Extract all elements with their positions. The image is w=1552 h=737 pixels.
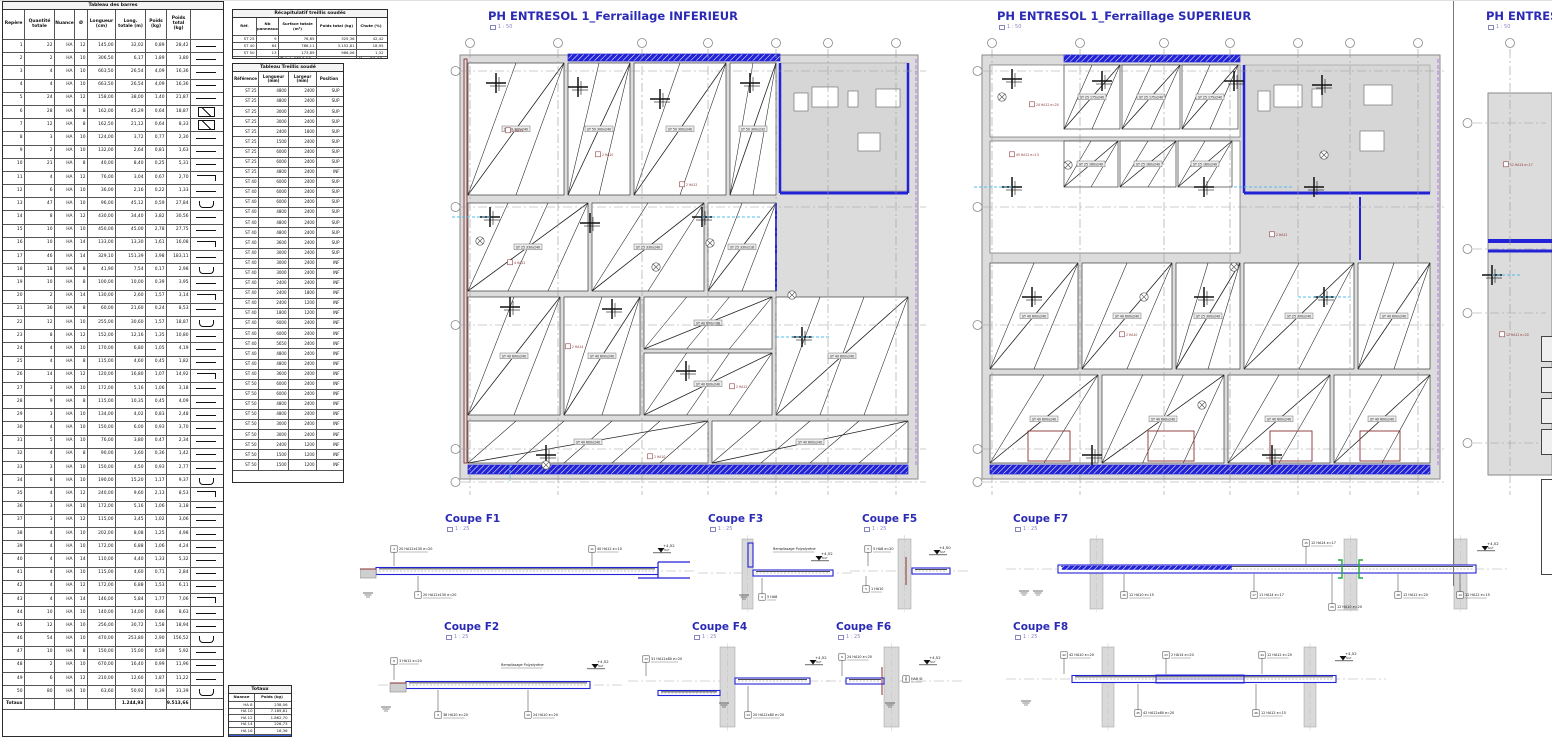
table-cell: 1,07 [146, 370, 167, 382]
table-cell: 156,52 [167, 633, 191, 645]
coupe-canvas: 35 HA8 e=2051 HA10+4,50NGF [850, 533, 968, 615]
table-cell: 1200 [289, 309, 317, 318]
table-cell: 4,19 [167, 343, 191, 355]
table-cell: 4800 [259, 360, 289, 369]
table-cell: Référence [233, 72, 259, 86]
table-cell: 4800 [259, 218, 289, 227]
level-marker: +4,52NGF [811, 551, 833, 561]
table-cell: 3 [25, 502, 55, 514]
table-cell: ST 40 [233, 329, 259, 338]
table-cell: 5,92 [167, 647, 191, 659]
table-cell: HA [55, 449, 75, 461]
svg-text:Remplissage Polystyrène: Remplissage Polystyrène [773, 547, 816, 551]
coupe-canvas: 83 HA12 e=20938 HA10 e=201024 HA10 e=20R… [378, 641, 623, 733]
table-cell: 10 [75, 462, 88, 474]
table-cell: 7 [3, 119, 25, 131]
table-cell: ST 50 [233, 390, 259, 399]
table-cell: 12 [75, 515, 88, 527]
table-row: ST 5013173,89986,061,32 [233, 50, 387, 57]
table-cell: HA [55, 383, 75, 395]
table-cell: 2400 [289, 269, 317, 278]
coupe-title: Coupe F5 [862, 513, 917, 525]
table-cell: 20 [3, 291, 25, 303]
table-cell: 45,12 [116, 198, 146, 210]
table-cell: SUP [317, 127, 341, 136]
bar-shape-glyph [196, 573, 216, 574]
svg-text:10: 10 [526, 713, 530, 717]
table-cell: ST 40 [233, 339, 259, 348]
table-cell: 12 [75, 330, 88, 342]
svg-text:12 HA12 e=20: 12 HA12 e=20 [1403, 593, 1428, 597]
svg-text:19: 19 [1458, 593, 1462, 597]
table-row: 434HA14146,005,841,777,06 [3, 594, 223, 607]
svg-text:1 HA10: 1 HA10 [871, 587, 883, 591]
svg-text:ST 40 600x240: ST 40 600x240 [590, 355, 614, 359]
table-cell: 210,00 [88, 673, 116, 685]
table-row: 384HA10202,008,081,254,98 [3, 528, 223, 541]
plan-scale: 1 : 50 [1488, 24, 1510, 30]
table-cell: 12 [75, 172, 88, 184]
table-cell: 8 [25, 475, 55, 487]
table-cell: HA [55, 488, 75, 500]
table-cell: 1.244,93 [116, 699, 146, 709]
table-cell: 15,00 [116, 647, 146, 659]
table-cell: 0,99 [146, 660, 167, 672]
title-block-cell [1541, 336, 1552, 362]
bar-shape-glyph [196, 665, 216, 666]
svg-text:12 HA14 e=17: 12 HA14 e=17 [1510, 163, 1533, 167]
table-cell: 8 [75, 357, 88, 369]
table-cell: HA [55, 607, 75, 619]
table-row: ST 4030002400SUP [233, 249, 343, 259]
table-cell: 6000 [259, 158, 289, 167]
svg-text:7: 7 [417, 593, 419, 597]
table-cell: 10 [75, 198, 88, 210]
svg-text:2 HA12: 2 HA12 [736, 385, 747, 389]
table-cell: 30,72 [116, 620, 146, 632]
table-cell: 16,36 [255, 728, 289, 734]
table-cell: 4 [25, 357, 55, 369]
scale-value: 1 : 25 [846, 634, 860, 640]
table-cell: 6000 [259, 329, 289, 338]
table-cell: ST 25 [233, 127, 259, 136]
table-cell: 3600 [259, 238, 289, 247]
table-cell: ST 25 [233, 97, 259, 106]
svg-text:20 HA12x130 e=20: 20 HA12x130 e=20 [423, 593, 456, 597]
room-area [780, 63, 908, 191]
table-cell: 10 [75, 541, 88, 553]
table-cell: 8,53 [167, 488, 191, 500]
table-cell: 60,00 [88, 304, 116, 316]
mesh-list-table: Tableau Treillis soudéRéférenceLongueur … [232, 63, 344, 483]
table-cell: 470,00 [88, 633, 116, 645]
table-cell: 7,54 [116, 264, 146, 276]
table-cell: 18,95 [357, 43, 385, 49]
table-cell: 6000 [259, 148, 289, 157]
svg-text:12 HA12 e=15: 12 HA12 e=15 [1465, 593, 1490, 597]
bar-shape-glyph [199, 478, 214, 485]
table-cell [146, 699, 167, 709]
table-cell: 1,77 [146, 594, 167, 606]
table-cell: SUP [317, 238, 341, 247]
svg-text:20: 20 [1330, 605, 1334, 609]
table-row: ST 4060002400SUP [233, 178, 343, 188]
bar-shape-glyph [198, 120, 215, 130]
table-cell: HA 10 [229, 709, 255, 715]
table-row: 4654HA10470,00253,802,90156,52 [3, 633, 223, 646]
table-row: 1021HA840,008,400,255,31 [3, 159, 223, 172]
table-cell: 183,11 [167, 251, 191, 263]
table-cell: 3000 [259, 259, 289, 268]
table-cell [191, 581, 221, 593]
table-cell: 5,31 [167, 159, 191, 171]
table-cell: Total: 4.627,1 kg [317, 57, 357, 59]
table-cell: HA [55, 66, 75, 78]
table-cell: 5,16 [116, 502, 146, 514]
table-row: ST 2548002400INF [233, 168, 343, 178]
table-cell: INF [317, 279, 341, 288]
svg-text:ST 25 175x240: ST 25 175x240 [1080, 96, 1104, 100]
table-row: HA 14226,73 [229, 722, 291, 729]
level-marker: +4,50NGF [929, 545, 951, 555]
bar-shape-glyph [196, 98, 216, 99]
table-cell: 173,89 [279, 50, 317, 56]
table-row: ST 2560002400SUP [233, 148, 343, 158]
svg-text:ST 40 600x240: ST 40 600x240 [576, 441, 600, 445]
table-cell: 34,40 [116, 211, 146, 223]
svg-text:5 HA8 e=20: 5 HA8 e=20 [873, 547, 894, 551]
table-cell: 0,39 [146, 686, 167, 698]
table-cell: 3000 [259, 420, 289, 429]
table-cell: 0,81 [146, 146, 167, 158]
table-row: ST 25976,85325,3642,42 [233, 36, 387, 43]
table-cell [191, 370, 221, 382]
table-cell: ST 40 [233, 178, 259, 187]
table-cell: 4800 [259, 87, 289, 96]
table-cell: 3 [3, 66, 25, 78]
table-cell: 10 [25, 647, 55, 659]
bar-shape-glyph [199, 201, 214, 208]
bar-shape-glyph [196, 652, 216, 653]
table-cell: 10 [75, 422, 88, 434]
table-cell: 2400 [289, 87, 317, 96]
table-cell: ST 50 [233, 450, 259, 459]
table-cell: 8 [25, 211, 55, 223]
svg-text:13: 13 [644, 657, 648, 661]
table-cell: HA [55, 106, 75, 118]
table-cell: 6,88 [116, 581, 146, 593]
table-row: HA 1616,36 [229, 728, 291, 735]
svg-text:24 HA10 e=20: 24 HA10 e=20 [533, 713, 558, 717]
bar-shape-glyph [196, 534, 216, 535]
table-cell: 12 [75, 581, 88, 593]
table-cell [191, 436, 221, 448]
table-row: ST 4060002400SUP [233, 188, 343, 198]
table-header-row: RepèreQuantité totaleNuanceØLongueur (cm… [3, 10, 223, 40]
table-row: ST 4036002400SUP [233, 238, 343, 248]
table-cell: 16 [3, 238, 25, 250]
table-cell: Total 87 [257, 57, 279, 59]
title-block-cell [1541, 367, 1552, 393]
bar-shape-glyph [196, 454, 216, 455]
slab-section [1072, 675, 1336, 683]
table-cell: 2400 [289, 218, 317, 227]
table-cell [191, 647, 221, 659]
table-cell: HA [55, 225, 75, 237]
level-marker: +4,52NGF [587, 659, 609, 669]
table-cell: 5,84 [116, 594, 146, 606]
table-row: 1910HA8100,0010,000,393,95 [3, 277, 223, 290]
table-cell: 28 [3, 396, 25, 408]
table-cell: 2400 [289, 390, 317, 399]
table-cell: Poids (kg) [146, 10, 167, 39]
table-cell: 238,06 [255, 702, 289, 708]
table-cell: 2400 [289, 158, 317, 167]
svg-text:12 HA12 e=20: 12 HA12 e=20 [1267, 653, 1292, 657]
table-cell: 10 [75, 633, 88, 645]
table-cell: ST 40 [233, 319, 259, 328]
table-cell: 2400 [289, 370, 317, 379]
table-cell: HA [55, 436, 75, 448]
table-cell: 0,93 [146, 422, 167, 434]
scale-icon [1015, 527, 1021, 532]
table-cell: 45,00 [116, 225, 146, 237]
table-cell: 10 [75, 53, 88, 65]
table-row: 254HA8115,004,600,451,82 [3, 357, 223, 370]
table-cell: 45 [3, 620, 25, 632]
table-cell: SUP [317, 208, 341, 217]
coupe-scale: 1 : 25 [694, 634, 716, 640]
table-cell: 18,94 [167, 620, 191, 632]
table-cell: HA [55, 211, 75, 223]
table-cell: 8,63 [167, 607, 191, 619]
title-block-cell [1541, 479, 1552, 575]
table-cell [191, 251, 221, 263]
table-cell: 4 [25, 172, 55, 184]
svg-text:ST 40 600x240: ST 40 600x240 [798, 441, 822, 445]
coupe-scale: 1 : 25 [864, 526, 886, 532]
table-cell: 10,80 [167, 330, 191, 342]
table-cell: 1500 [259, 137, 289, 146]
table-cell: 2400 [289, 410, 317, 419]
table-cell: 12 [75, 673, 88, 685]
table-row: 293HA10134,004,020,832,48 [3, 409, 223, 422]
table-cell [191, 132, 221, 144]
table-row: 404HA14110,004,401,335,32 [3, 554, 223, 567]
table-cell: 11 [3, 172, 25, 184]
table-cell: ST 25 [233, 117, 259, 126]
svg-text:45 HA12 e=13: 45 HA12 e=13 [1016, 153, 1039, 157]
table-cell: 2400 [289, 319, 317, 328]
table-cell: 10 [75, 185, 88, 197]
table-row: ST 2548002400SUP [233, 97, 343, 107]
table-cell: 2,98 [167, 264, 191, 276]
scale-value: 1 : 25 [454, 634, 468, 640]
table-cell: 986,06 [317, 50, 357, 56]
table-cell: 0,93 [146, 462, 167, 474]
table-cell [191, 541, 221, 553]
svg-text:ST 40 600x240: ST 40 600x240 [1151, 418, 1175, 422]
table-cell: 32 [3, 449, 25, 461]
table-row: HA 121.862,70 [229, 715, 291, 722]
scale-value: 1 : 50 [498, 24, 512, 30]
table-cell: 9,37 [167, 475, 191, 487]
table-row: ST 5060002400INF [233, 390, 343, 400]
level-marker: +4,52NGF [805, 655, 827, 665]
table-cell: 6000 [259, 380, 289, 389]
table-cell: 14 [75, 554, 88, 566]
table-cell: 18,87 [167, 106, 191, 118]
table-cell: 1,87 [146, 673, 167, 685]
table-cell: HA [55, 647, 75, 659]
svg-text:ST 40 600x240: ST 40 600x240 [830, 355, 854, 359]
table-cell: 1800 [259, 309, 289, 318]
table-cell: 14,00 [116, 607, 146, 619]
table-cell: 63,60 [88, 686, 116, 698]
table-cell: HA [55, 554, 75, 566]
table-cell: 50 [3, 686, 25, 698]
table-cell: 1,63 [167, 146, 191, 158]
bar-shape-glyph [196, 217, 216, 218]
coupe-title: Coupe F3 [708, 513, 763, 525]
table-cell: ST 40 [233, 370, 259, 379]
table-cell: 96,00 [88, 198, 116, 210]
table-title: Récapitulatif treillis soudés [233, 10, 387, 18]
table-cell: 1200 [289, 299, 317, 308]
table-cell: 32,02 [116, 40, 146, 52]
bar-shape-glyph [196, 441, 216, 442]
table-cell: 2,70 [167, 172, 191, 184]
table-cell: 2400 [289, 198, 317, 207]
table-cell: SUP [317, 137, 341, 146]
table-cell: 1,40 [146, 93, 167, 105]
table-cell: 13,30 [116, 238, 146, 250]
table-title: Tableau des barres [3, 2, 223, 10]
table-cell: SUP [317, 228, 341, 237]
plan-scale: 1 : 50 [999, 24, 1021, 30]
table-cell: HA [55, 119, 75, 131]
table-cell: 4800 [259, 349, 289, 358]
svg-text:46: 46 [1254, 711, 1258, 715]
table-cell: 150,00 [88, 462, 116, 474]
svg-text:ST 40 600x240: ST 40 600x240 [1382, 315, 1406, 319]
table-cell: 3,80 [167, 53, 191, 65]
table-cell: 12 [75, 93, 88, 105]
table-cell: HA [55, 172, 75, 184]
table-row: 148HA12430,0034,403,8230,56 [3, 211, 223, 224]
table-cell: 21,87 [167, 93, 191, 105]
table-cell: HA [55, 660, 75, 672]
table-cell: 21,12 [116, 119, 146, 131]
table-cell: 3,80 [116, 436, 146, 448]
table-cell: 306,50 [88, 53, 116, 65]
table-row: 92HA10132,002,640,811,63 [3, 146, 223, 159]
table-cell: 2400 [289, 148, 317, 157]
scale-value: 1 : 25 [702, 634, 716, 640]
table-cell: Repère [3, 10, 25, 39]
table-cell: SUP [317, 188, 341, 197]
table-row: ST 4024001200INF [233, 299, 343, 309]
table-cell: 8 [75, 106, 88, 118]
table-cell: 1,42 [167, 449, 191, 461]
table-cell: 11,96 [167, 660, 191, 672]
table-cell: 0,83 [146, 409, 167, 421]
table-cell: 2400 [259, 279, 289, 288]
svg-text:+4,52: +4,52 [929, 655, 941, 660]
coupe-canvas: 624 HA10 e=202HA8 St+4,52NGF [826, 641, 964, 733]
table-row: HA 107.169,81 [229, 709, 291, 716]
table-cell: 2 [3, 53, 25, 65]
svg-text:ST 50 300x232: ST 50 300x232 [741, 128, 765, 132]
coupe-scale: 1 : 25 [710, 526, 732, 532]
table-cell: ST 40 [233, 218, 259, 227]
svg-text:31 HA12x80 e=20: 31 HA12x80 e=20 [651, 657, 682, 661]
table-cell: SUP [317, 158, 341, 167]
table-cell: ST 40 [233, 299, 259, 308]
table-cell: 10 [75, 80, 88, 92]
table-cell: INF [317, 450, 341, 459]
table-cell: 44 [3, 607, 25, 619]
table-cell: 2,16 [116, 185, 146, 197]
table-cell: 27,84 [167, 198, 191, 210]
svg-text:ST 50 300x240: ST 50 300x240 [668, 128, 692, 132]
table-cell: HA [55, 330, 75, 342]
svg-text:11: 11 [590, 547, 594, 551]
bar-shape-glyph [196, 138, 216, 139]
table-cell: 14 [75, 251, 88, 263]
table-cell: 4 [25, 488, 55, 500]
table-row: ST 2515002400SUP [233, 137, 343, 147]
table-cell: 40 [3, 554, 25, 566]
table-cell [191, 264, 221, 276]
table-cell: 1,82 [167, 357, 191, 369]
table-cell: 1,05 [146, 343, 167, 355]
table-cell [191, 106, 221, 118]
svg-text:NGF: NGF [816, 660, 822, 664]
table-cell: 0,39 [146, 277, 167, 289]
table-cell: Réf. [233, 18, 257, 35]
table-cell: 38 [3, 528, 25, 540]
table-cell: 2400 [289, 430, 317, 439]
table-cell: 1,32 [357, 50, 385, 56]
table-cell: Poids (kg) [255, 694, 289, 701]
coupe-f5: Coupe F5 1 : 25 35 HA8 e=2051 HA10+4,50N… [850, 513, 968, 615]
svg-text:18: 18 [1396, 593, 1400, 597]
table-cell [191, 93, 221, 105]
table-cell: HA [55, 132, 75, 144]
table-cell [191, 620, 221, 632]
level-marker: +4,52NGF [653, 543, 675, 553]
table-cell: 172,00 [88, 541, 116, 553]
table-cell: 2400 [259, 289, 289, 298]
table-cell: INF [317, 430, 341, 439]
table-cell: HA [55, 291, 75, 303]
table-cell: 10 [25, 277, 55, 289]
svg-text:12 HA10 e=15: 12 HA10 e=15 [1129, 593, 1154, 597]
table-row: ST 4030002400INF [233, 259, 343, 269]
table-cell: 1,06 [146, 502, 167, 514]
table-cell: 1800 [289, 289, 317, 298]
table-cell: HA [55, 396, 75, 408]
bar-shape-glyph [196, 362, 216, 363]
scale-value: 1 : 25 [1023, 526, 1037, 532]
table-cell: 132,00 [88, 146, 116, 158]
table-cell: 0,67 [146, 172, 167, 184]
table-row: ST 5030002400INF [233, 430, 343, 440]
table-cell [191, 172, 221, 184]
table-cell: ST 40 [233, 43, 257, 49]
table-cell: 1,58 [146, 620, 167, 632]
